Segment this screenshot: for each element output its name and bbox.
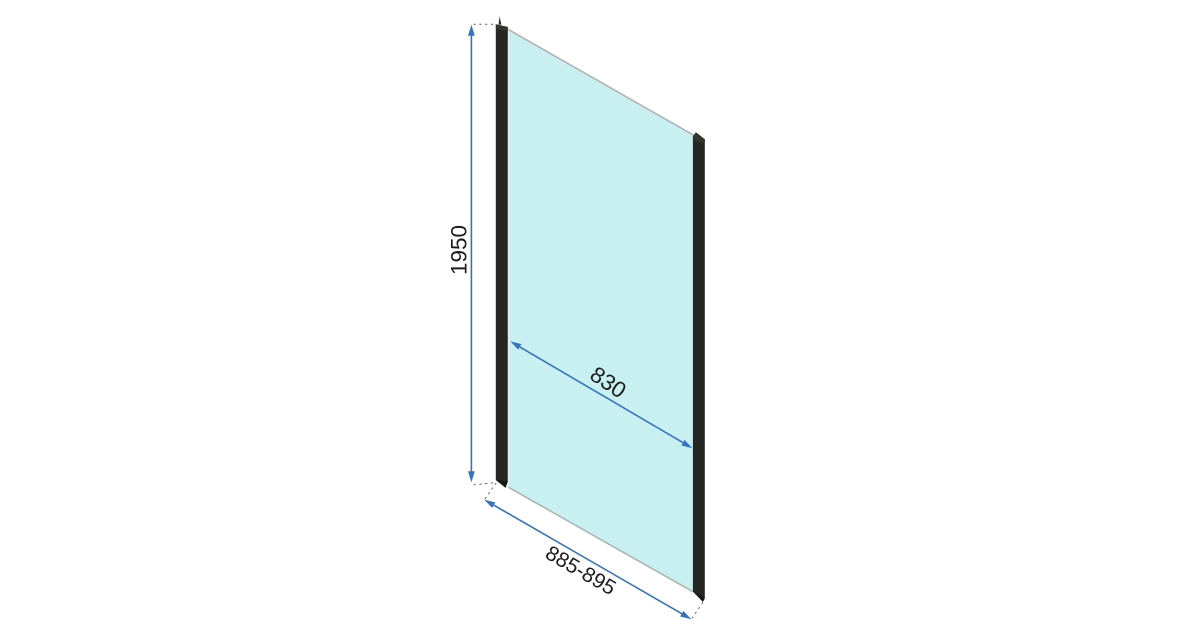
svg-text:1950: 1950 <box>446 225 471 275</box>
